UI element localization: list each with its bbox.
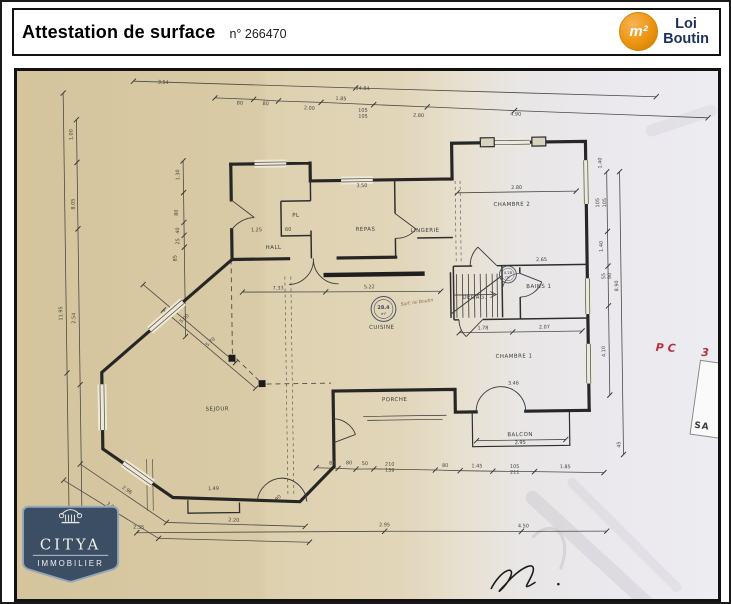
- dim-label: 139: [385, 468, 395, 474]
- attestation-page: Attestation de surface n° 266470 m² Loi …: [0, 0, 731, 604]
- dim-label: 11.95: [58, 306, 64, 320]
- room-label: CHAMBRE 2: [493, 202, 530, 209]
- dim-label: 2.54: [71, 313, 77, 324]
- dim-label: 2.95: [379, 522, 390, 528]
- dim-label: 5.22: [364, 284, 375, 290]
- stamp-large-unit: m²: [381, 312, 387, 316]
- badge-line2: Boutin: [663, 32, 709, 47]
- dim-label: 8.05: [71, 199, 77, 210]
- dim-label: 2.65: [536, 257, 547, 263]
- room-label: LINGERIE: [410, 228, 439, 234]
- dim-label: 2.20: [228, 517, 239, 523]
- dim-label: 2.07: [539, 324, 550, 330]
- loi-boutin-badge: m² Loi Boutin: [619, 12, 709, 51]
- dim-label: 3.46: [508, 380, 519, 386]
- dim-label: 1.78: [477, 325, 488, 331]
- room-label: PORCHE: [382, 397, 407, 403]
- dim-label: 80: [346, 460, 352, 466]
- m2-logo-icon: m²: [619, 12, 658, 51]
- dim-label: 1.85: [560, 464, 571, 470]
- dim-label: 85: [172, 255, 178, 261]
- red-note-pc: PC: [655, 341, 680, 355]
- logo-subtitle: IMMOBILIER: [37, 559, 103, 568]
- dim-label: 60: [285, 227, 291, 233]
- dim-label: 3.54: [158, 80, 169, 86]
- m2-symbol: m²: [629, 23, 647, 40]
- red-note-number: 3: [701, 346, 713, 360]
- dim-label: 80: [442, 463, 448, 469]
- floorplan-svg: 28.4 m² 4.28 m² Surf. loi Boutin HALLPLR…: [17, 71, 718, 599]
- floorplan-scan: 28.4 m² 4.28 m² Surf. loi Boutin HALLPLR…: [14, 68, 721, 602]
- room-label: REPAS: [356, 227, 376, 233]
- room-label: CUISINE: [369, 325, 395, 331]
- dim-label: 2.35: [133, 525, 144, 531]
- dim-label: 1.45: [471, 463, 482, 469]
- room-label: HALL: [266, 245, 282, 251]
- dim-label: 80: [237, 100, 244, 106]
- room-label: BALCON: [507, 432, 533, 438]
- dim-label: 2.80: [413, 113, 424, 119]
- badge-line1: Loi: [663, 17, 709, 32]
- badge-text: Loi Boutin: [663, 17, 709, 47]
- room-label: DEGAG.: [462, 295, 486, 301]
- dim-label: 8.90: [614, 280, 620, 291]
- dim-label: 4.10: [601, 346, 607, 357]
- dim-label: 1.00: [69, 129, 75, 140]
- dim-label: 105: [602, 198, 608, 208]
- dim-label: 1.40: [598, 157, 604, 168]
- dim-label: 1.25: [251, 227, 262, 233]
- dim-label: 90: [607, 273, 613, 279]
- dim-label: 2.80: [511, 185, 522, 191]
- doc-number: n° 266470: [229, 27, 286, 41]
- dim-label: 105: [358, 114, 368, 120]
- stamp-small-unit: m²: [505, 275, 511, 279]
- room-label: PL: [292, 213, 299, 219]
- header: Attestation de surface n° 266470 m² Loi …: [12, 8, 721, 56]
- side-stamp-label: SA: [694, 421, 711, 433]
- stamp-small-value: 4.28: [504, 271, 513, 275]
- dim-label: 45: [616, 441, 622, 447]
- dim-label: 25: [175, 238, 181, 244]
- dim-label: 4.90: [510, 111, 521, 117]
- dim-label: 7.33: [273, 286, 284, 292]
- dim-label: 14.84: [355, 86, 369, 93]
- dim-label: 1.85: [335, 96, 346, 102]
- dim-label: 80: [174, 209, 180, 215]
- dim-label: 211: [510, 470, 520, 476]
- kitchen-wall: [324, 274, 425, 275]
- dim-label: 2.00: [304, 105, 315, 111]
- dim-label: 4.50: [518, 523, 529, 529]
- dim-label: 1.30: [175, 169, 181, 180]
- page-title: Attestation de surface: [22, 22, 215, 43]
- dim-label: 1.40: [599, 241, 605, 252]
- dim-label: 3.50: [356, 183, 367, 189]
- dim-label: 80: [262, 101, 269, 107]
- dim-label: 2.95: [515, 440, 526, 446]
- dim-label: 80: [329, 460, 335, 466]
- logo-name: CITYA: [40, 535, 101, 553]
- room-label: CHAMBRE 1: [496, 353, 533, 360]
- stamp-large-value: 28.4: [377, 305, 390, 311]
- room-label: SEJOUR: [206, 406, 230, 412]
- dim-label: 105: [595, 198, 601, 208]
- dim-label: 40: [175, 227, 181, 233]
- dim-label: 50: [362, 461, 368, 467]
- room-label: BAINS 1: [526, 284, 551, 290]
- citya-logo: CITYA IMMOBILIER: [23, 507, 118, 582]
- dim-label: 1.49: [208, 486, 219, 492]
